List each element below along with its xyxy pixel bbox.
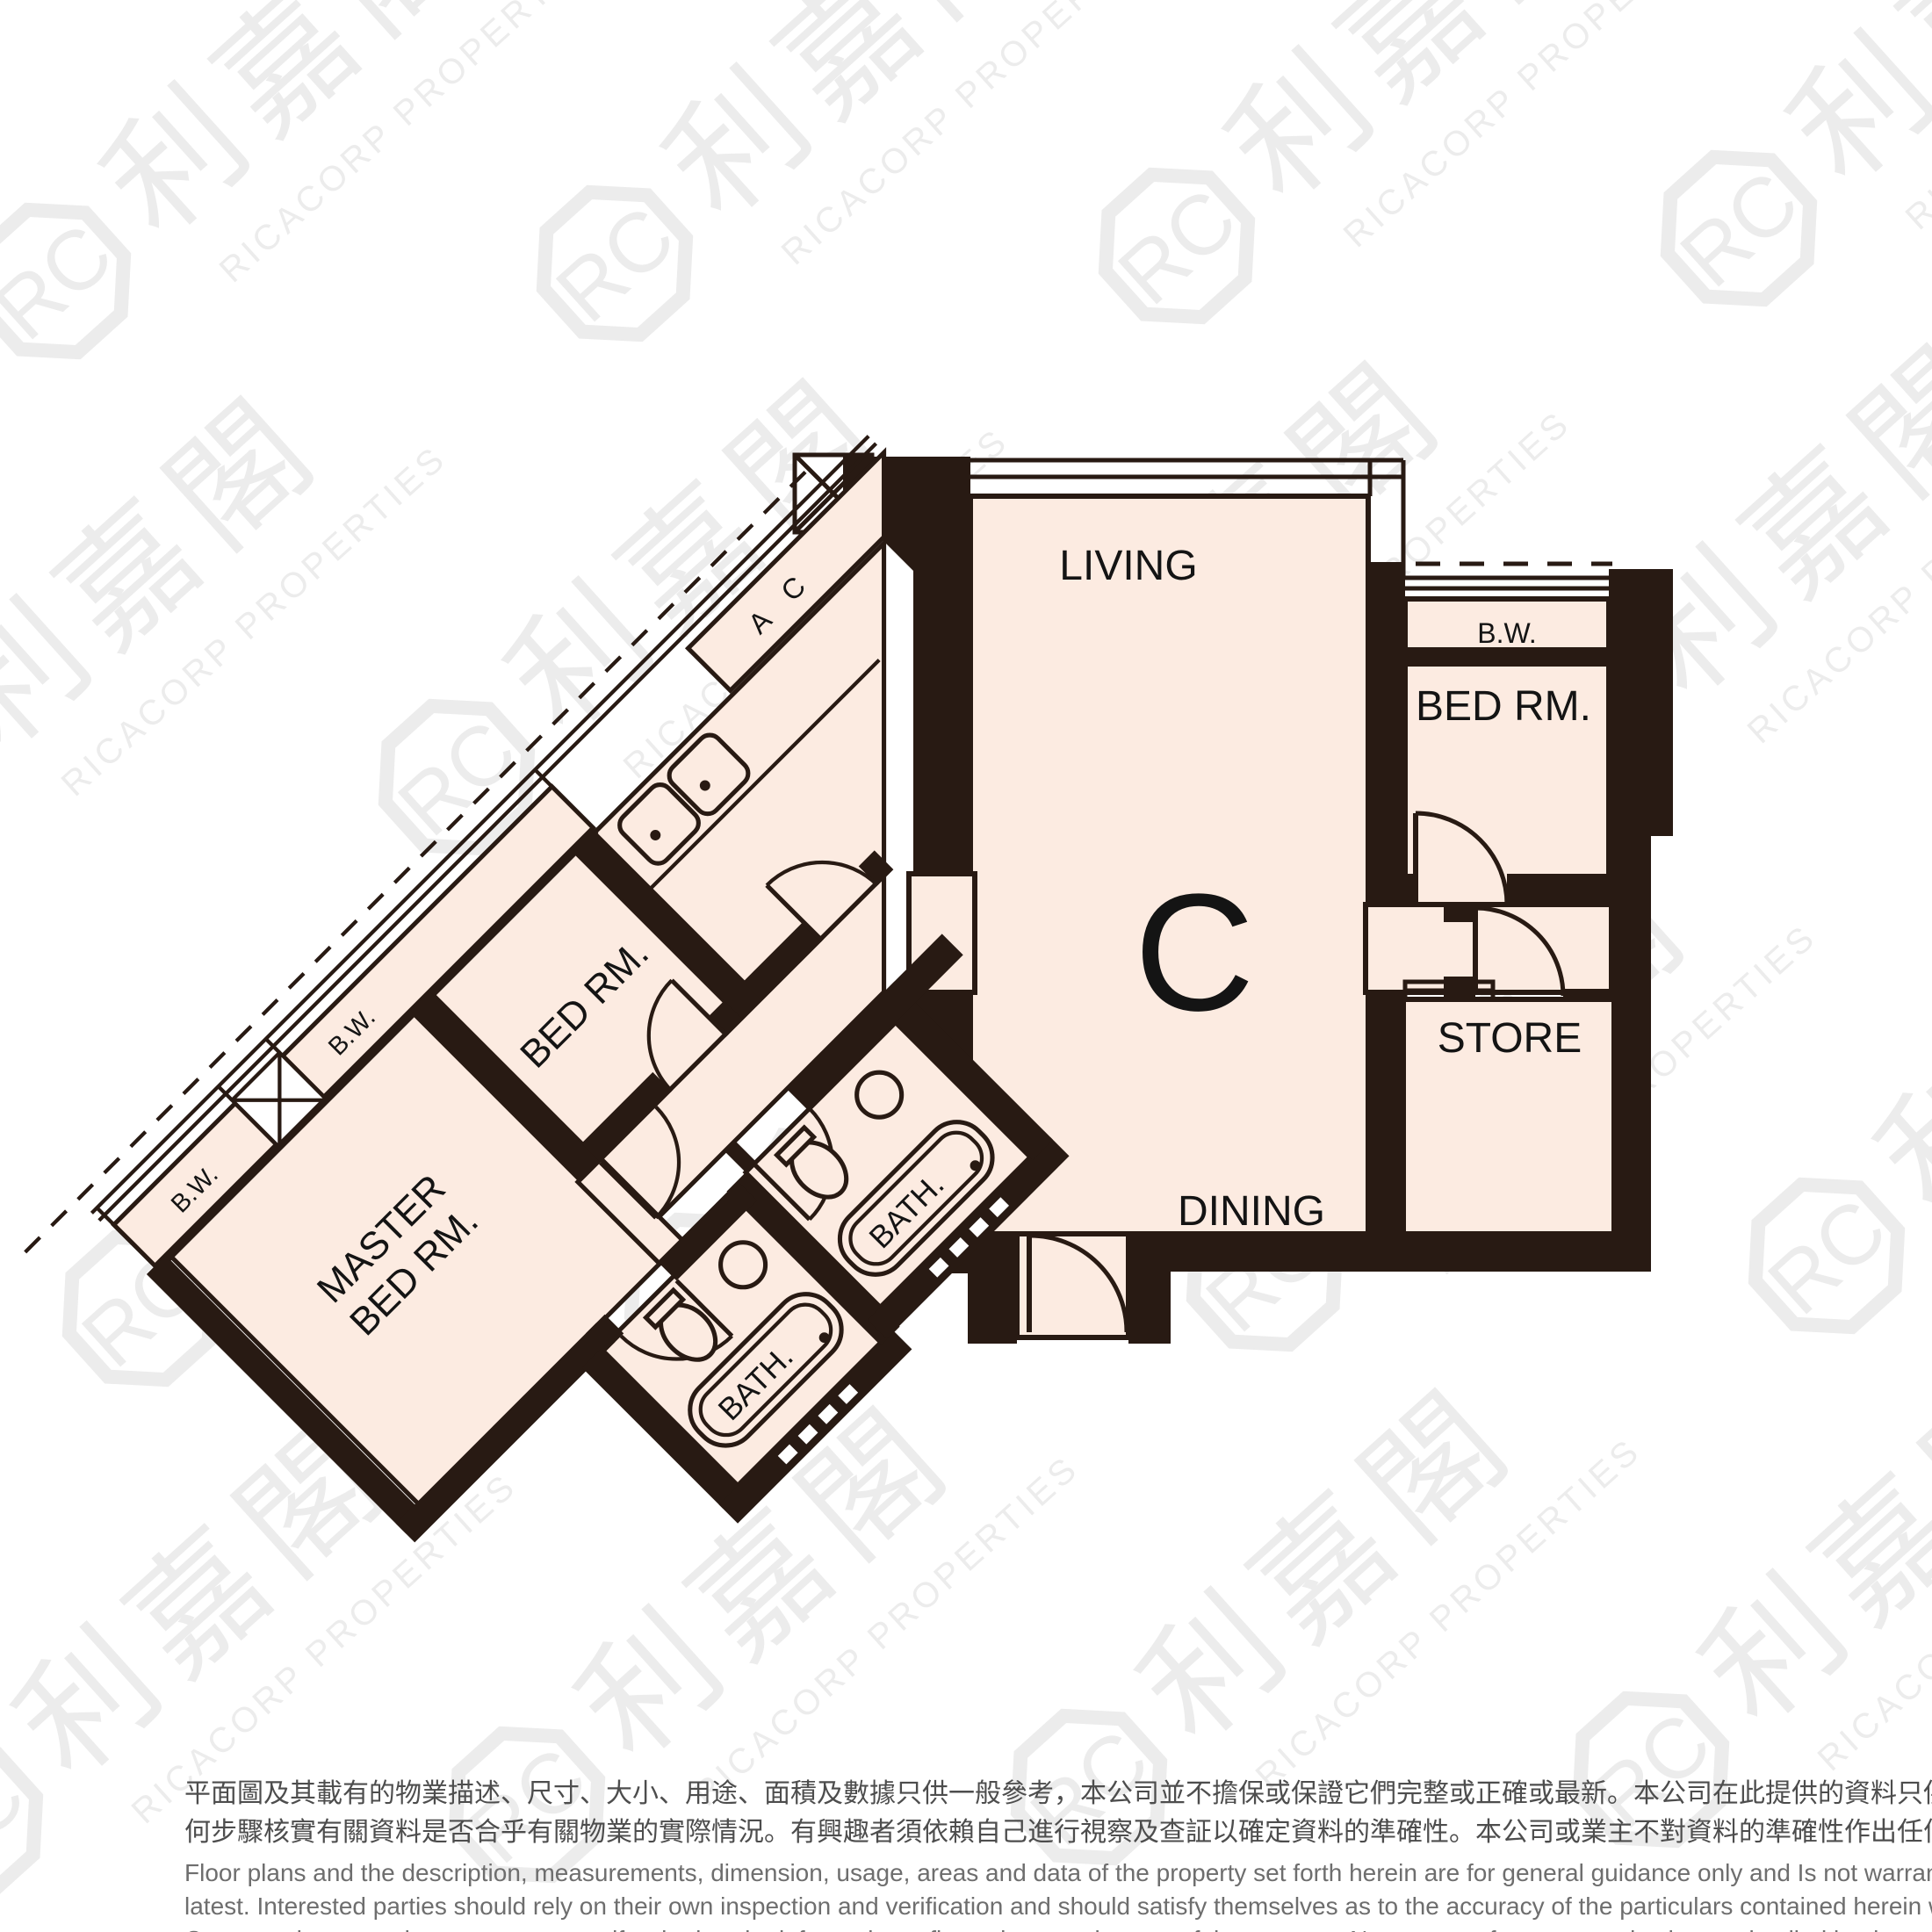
store-label: STORE: [1438, 1015, 1582, 1062]
floor-plan-svg: RC 利嘉閣 RICACORP PROPERTIES: [0, 0, 1932, 1932]
store-door-stub: [1444, 905, 1475, 922]
floorplan-page: RC 利嘉閣 RICACORP PROPERTIES: [0, 0, 1932, 1932]
store-top-thin-wall: [1563, 989, 1614, 999]
disclaimer-cn-line1: 平面圖及其載有的物業描述、尺寸、大小、用途、面積及數據只供一般參考，本公司並不擔…: [184, 1779, 1932, 1808]
store-left-wall: [1368, 992, 1403, 1238]
disclaimer-en-line2: latest. Interested parties should rely o…: [184, 1892, 1932, 1920]
unit-label: C: [1134, 860, 1254, 1046]
bottom-wall: [1128, 1234, 1651, 1272]
entry-nook-floor: [1017, 1234, 1128, 1337]
disclaimer-en-line1: Floor plans and the description, measure…: [184, 1859, 1932, 1886]
annex-bw-label: B.W.: [1477, 617, 1537, 649]
annex-right-wall-mid: [1609, 836, 1651, 994]
bedroom-wall-right: [1507, 874, 1609, 905]
living-label: LIVING: [1059, 543, 1197, 589]
annex-left-wall: [1366, 562, 1405, 905]
annex-bedroom-label: BED RM.: [1416, 683, 1591, 730]
disclaimer-en-line3: Company has not taken any step to verify…: [184, 1926, 1932, 1932]
disclaimer-cn-line2: 何步驟核實有關資料是否合乎有關物業的實際情況。有興趣者須依賴自己進行視察及查証以…: [184, 1818, 1932, 1847]
annex-corridor-floor: [1366, 905, 1611, 992]
dining-label: DINING: [1178, 1188, 1325, 1235]
store-right-wall: [1611, 994, 1651, 1238]
annex-right-wall-upper: [1609, 569, 1673, 836]
entry-left-jamb: [968, 1234, 1017, 1344]
